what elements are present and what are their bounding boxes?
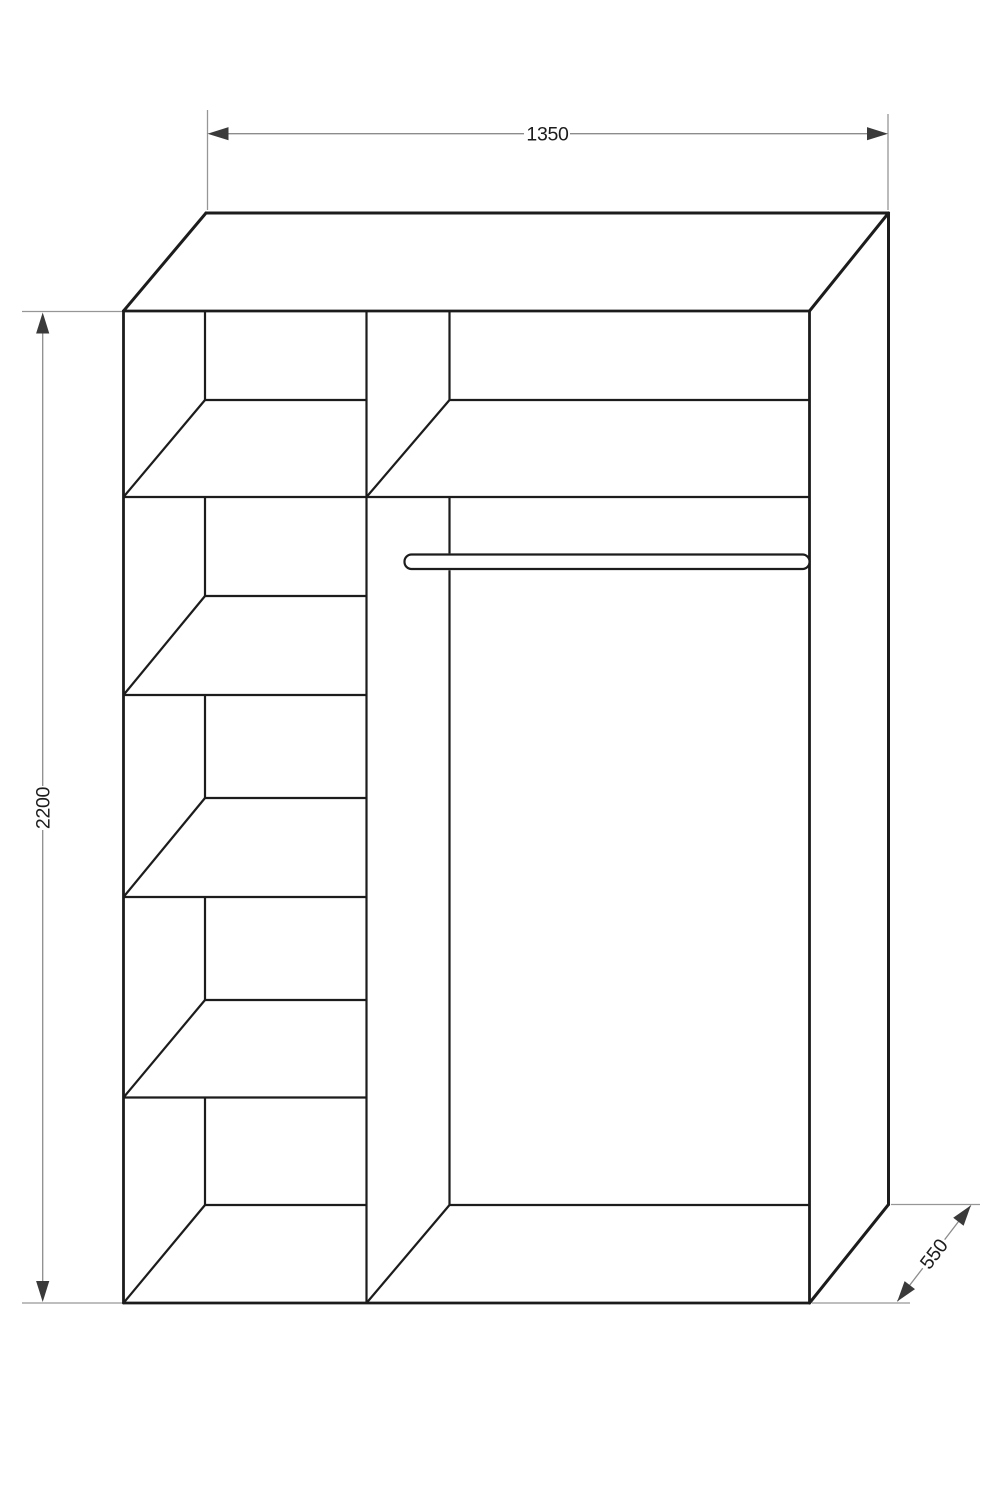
svg-text:2200: 2200 (33, 786, 55, 829)
svg-text:1350: 1350 (526, 124, 569, 146)
svg-text:550: 550 (916, 1235, 953, 1274)
